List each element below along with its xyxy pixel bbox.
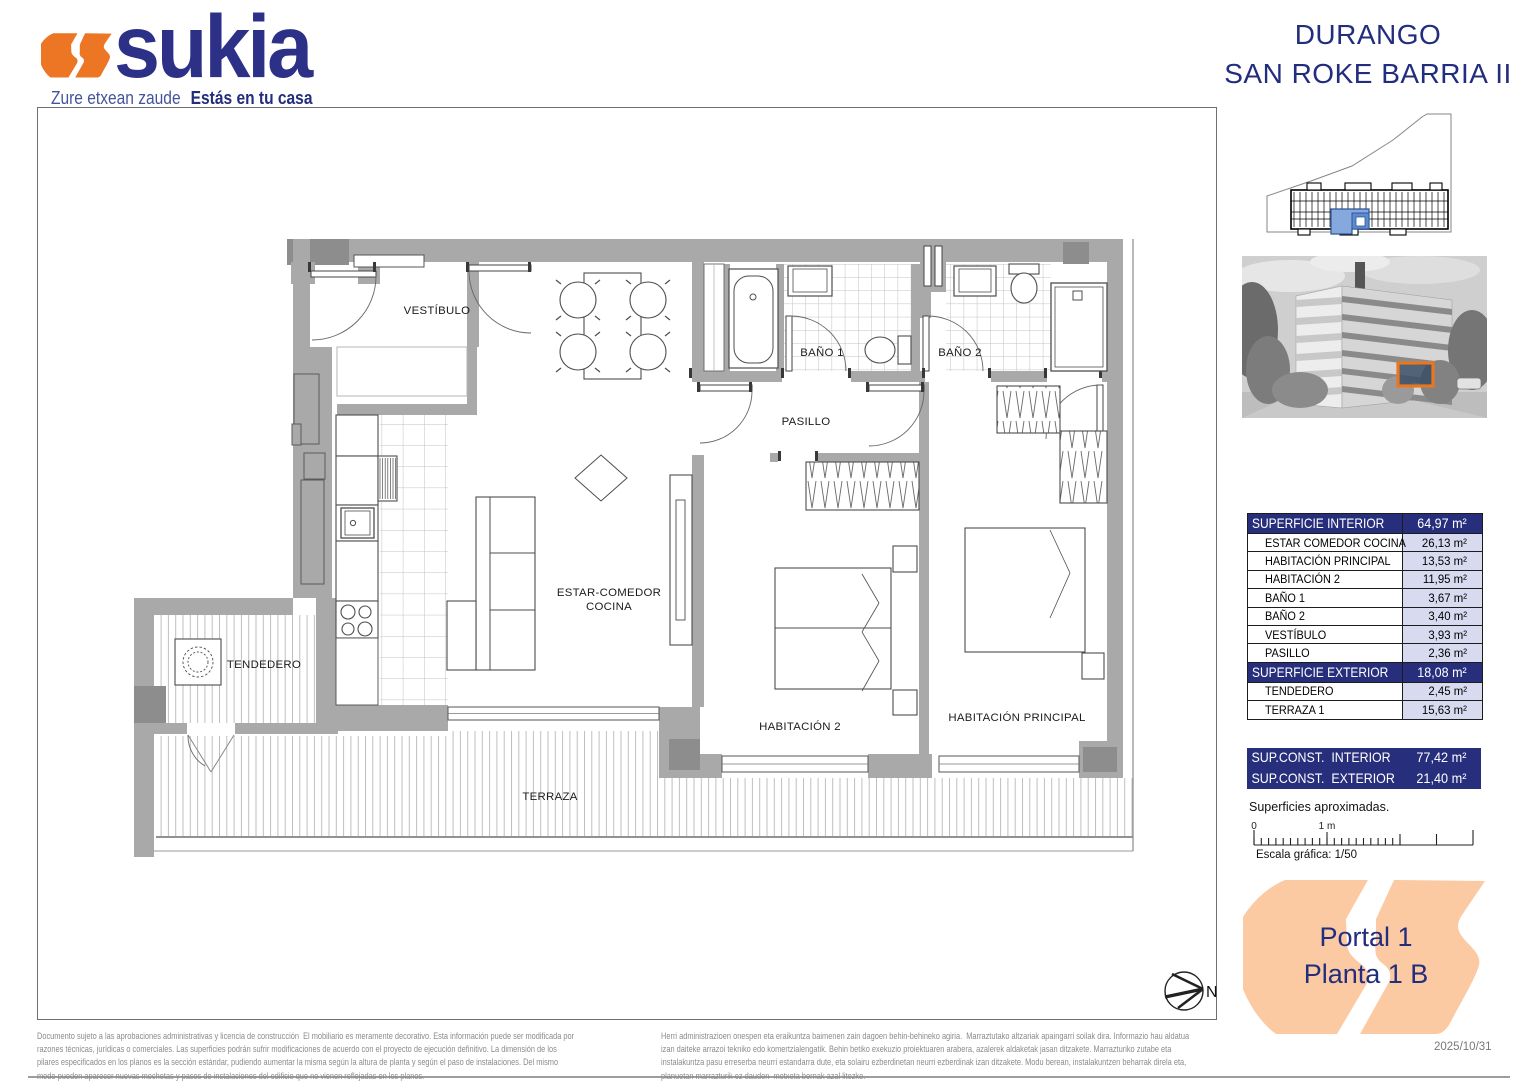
svg-text:VESTÍBULO: VESTÍBULO	[404, 304, 471, 317]
svg-text:0: 0	[1251, 821, 1257, 832]
svg-text:HABITACIÓN 2: HABITACIÓN 2	[759, 720, 841, 733]
svg-text:HABITACIÓN PRINCIPAL: HABITACIÓN PRINCIPAL	[948, 711, 1085, 724]
svg-text:BAÑO 2: BAÑO 2	[938, 346, 982, 359]
svg-text:TENDEDERO: TENDEDERO	[227, 659, 301, 671]
svg-text:sukia: sukia	[114, 0, 314, 97]
svg-text:BAÑO 1: BAÑO 1	[800, 346, 844, 359]
svg-text:PASILLO: PASILLO	[782, 416, 831, 428]
svg-text:TERRAZA: TERRAZA	[522, 791, 577, 803]
svg-text:COCINA: COCINA	[586, 601, 632, 613]
svg-text:ESTAR-COMEDOR: ESTAR-COMEDOR	[557, 587, 661, 599]
svg-text:N: N	[1206, 984, 1218, 1001]
svg-text:1 m: 1 m	[1319, 821, 1336, 832]
